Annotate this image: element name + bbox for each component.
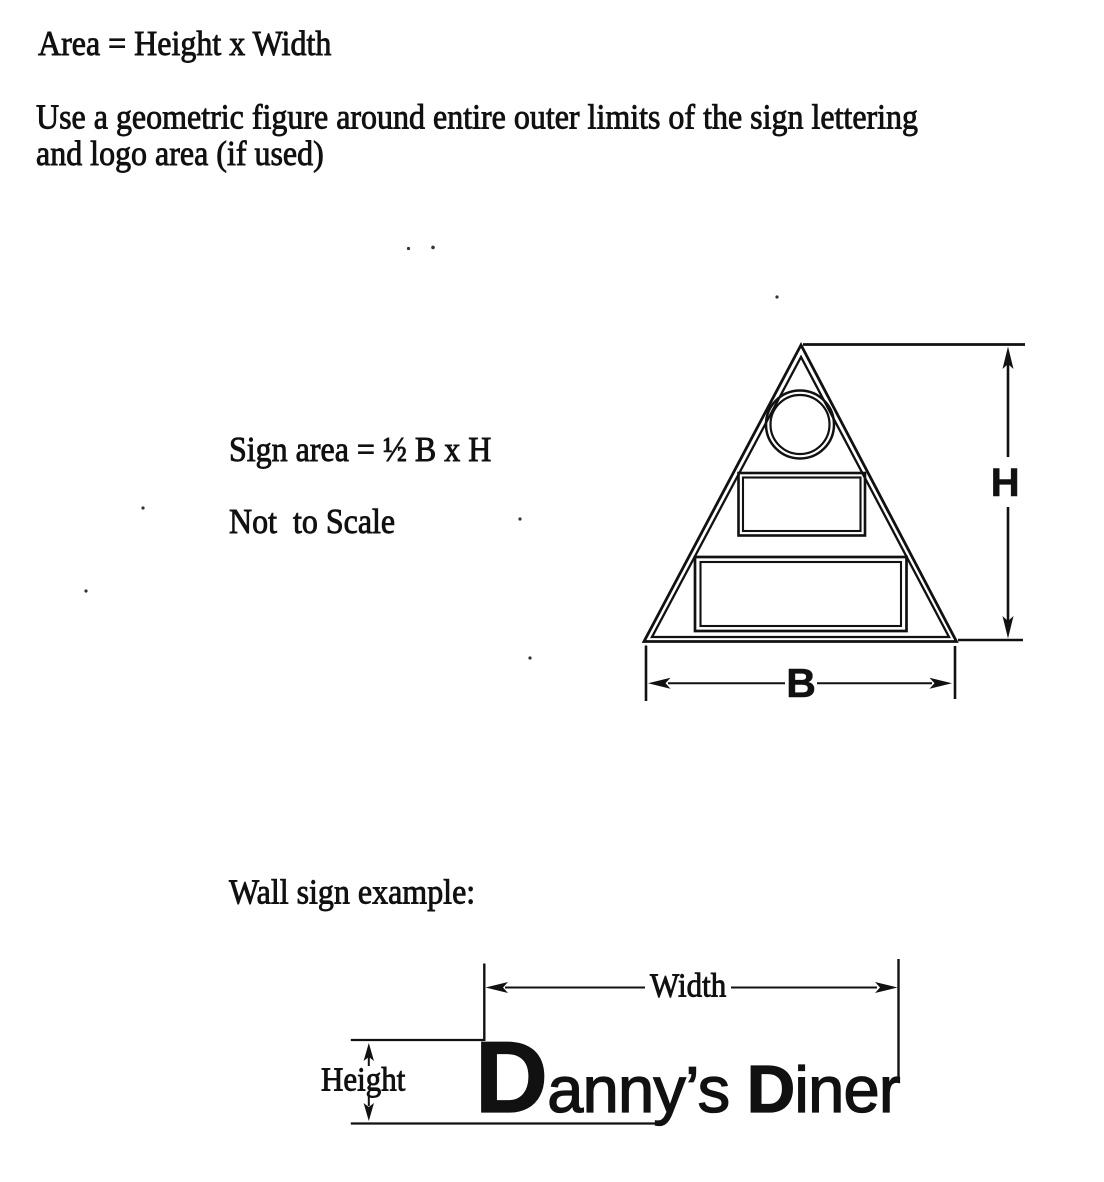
svg-text:Use a geometric figure around: Use a geometric figure around entire out…	[36, 98, 918, 137]
svg-text:B: B	[786, 660, 816, 706]
svg-text:Width: Width	[650, 967, 726, 1005]
svg-text:Danny’s Diner: Danny’s Diner	[475, 1022, 900, 1134]
svg-text:Height: Height	[321, 1061, 405, 1099]
svg-text:Wall sign example:: Wall sign example:	[229, 873, 475, 912]
svg-text:Area = Height x Width: Area = Height x Width	[38, 25, 332, 64]
svg-text:and logo area (if used): and logo area (if used)	[36, 135, 324, 174]
svg-text:Sign area = ½ B x H: Sign area = ½ B x H	[229, 431, 491, 470]
svg-text:Not to Scale: Not to Scale	[229, 503, 395, 542]
svg-text:H: H	[991, 461, 1020, 505]
